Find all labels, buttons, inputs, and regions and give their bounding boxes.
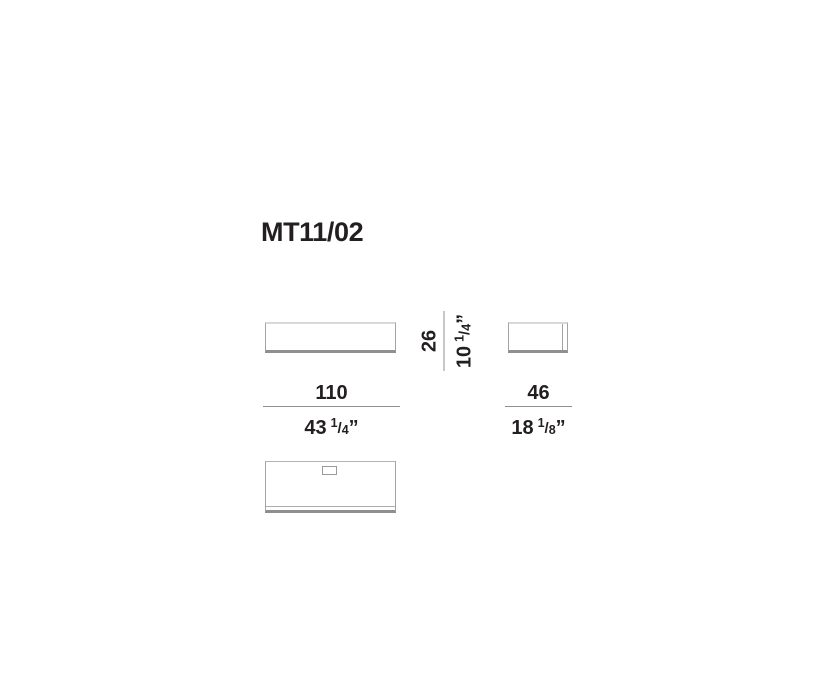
dimension-drawing: MT11/02 26 101/4” 110 431/4” 46 181/8” xyxy=(0,0,840,679)
fraction-denominator: 8 xyxy=(549,423,556,437)
model-code: MT11/02 xyxy=(261,217,363,248)
inch-mark: ” xyxy=(349,417,359,439)
width-metric-label: 110 xyxy=(263,382,400,404)
side-view-panel-line xyxy=(562,324,563,350)
depth-dimension: 46 181/8” xyxy=(505,382,572,441)
side-view-outline xyxy=(508,322,568,353)
fraction-numerator: 1 xyxy=(453,335,467,342)
fraction-numerator: 1 xyxy=(331,416,338,430)
handle-recess-detail xyxy=(322,466,337,475)
width-imperial-whole: 43 xyxy=(304,417,326,439)
height-imperial-fraction: 1/4 xyxy=(454,324,476,342)
height-imperial-whole: 10 xyxy=(454,346,476,368)
width-imperial-label: 431/4” xyxy=(263,412,400,441)
width-dimension-line xyxy=(263,406,400,407)
inch-mark: ” xyxy=(556,417,566,439)
front-face-view-outline xyxy=(265,461,396,513)
depth-dimension-line xyxy=(505,406,572,407)
inch-mark: ” xyxy=(454,314,476,324)
height-imperial-label: 101/4” xyxy=(449,311,478,371)
width-dimension: 110 431/4” xyxy=(263,382,400,441)
height-dimension: 26 101/4” xyxy=(419,311,478,371)
base-edge-line xyxy=(266,506,395,507)
height-metric-label: 26 xyxy=(419,311,441,371)
front-view-outline xyxy=(265,322,396,353)
fraction-denominator: 4 xyxy=(460,324,474,331)
height-dimension-line xyxy=(444,311,445,371)
depth-metric-label: 46 xyxy=(505,382,572,404)
depth-imperial-label: 181/8” xyxy=(505,412,572,441)
fraction-slash: / xyxy=(457,331,474,335)
depth-imperial-whole: 18 xyxy=(511,417,533,439)
depth-imperial-fraction: 1/8 xyxy=(538,417,556,439)
fraction-denominator: 4 xyxy=(342,423,349,437)
width-imperial-fraction: 1/4 xyxy=(331,417,349,439)
fraction-numerator: 1 xyxy=(538,416,545,430)
